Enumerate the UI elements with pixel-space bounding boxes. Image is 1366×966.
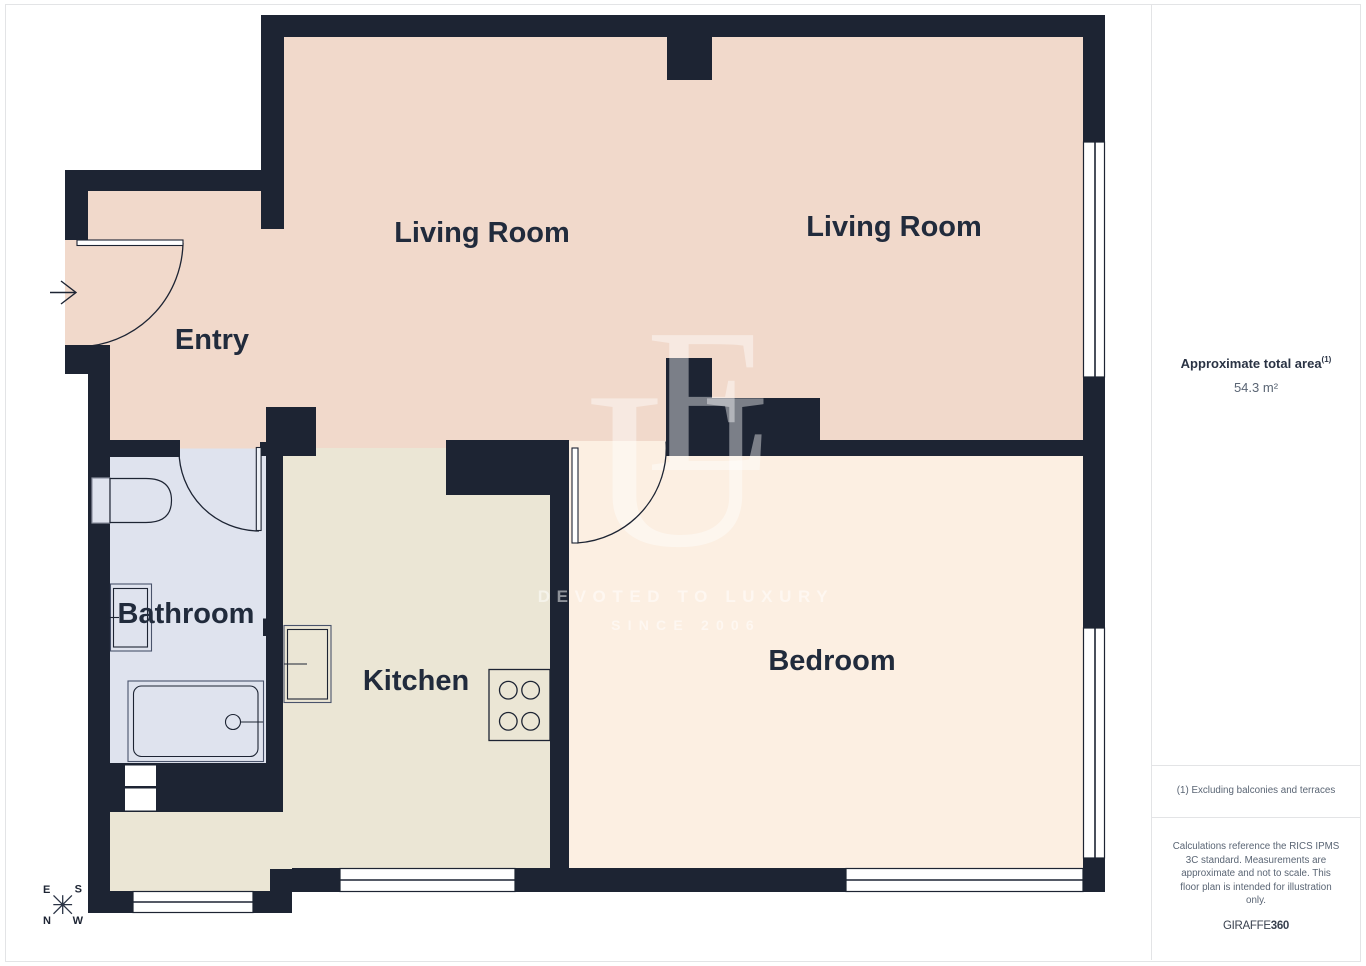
svg-text:S: S [75, 883, 82, 895]
svg-text:E: E [646, 286, 772, 515]
svg-text:N: N [43, 915, 51, 927]
svg-text:Bathroom: Bathroom [118, 598, 255, 630]
svg-text:DEVOTED TO LUXURY: DEVOTED TO LUXURY [538, 587, 834, 606]
svg-text:SINCE 2006: SINCE 2006 [611, 617, 761, 633]
svg-text:W: W [73, 915, 84, 927]
svg-text:Kitchen: Kitchen [363, 665, 469, 697]
svg-text:Living Room: Living Room [806, 211, 982, 243]
svg-text:E: E [43, 884, 50, 896]
svg-text:Bedroom: Bedroom [768, 645, 895, 677]
svg-text:Entry: Entry [175, 324, 249, 356]
svg-text:Living Room: Living Room [394, 217, 570, 249]
